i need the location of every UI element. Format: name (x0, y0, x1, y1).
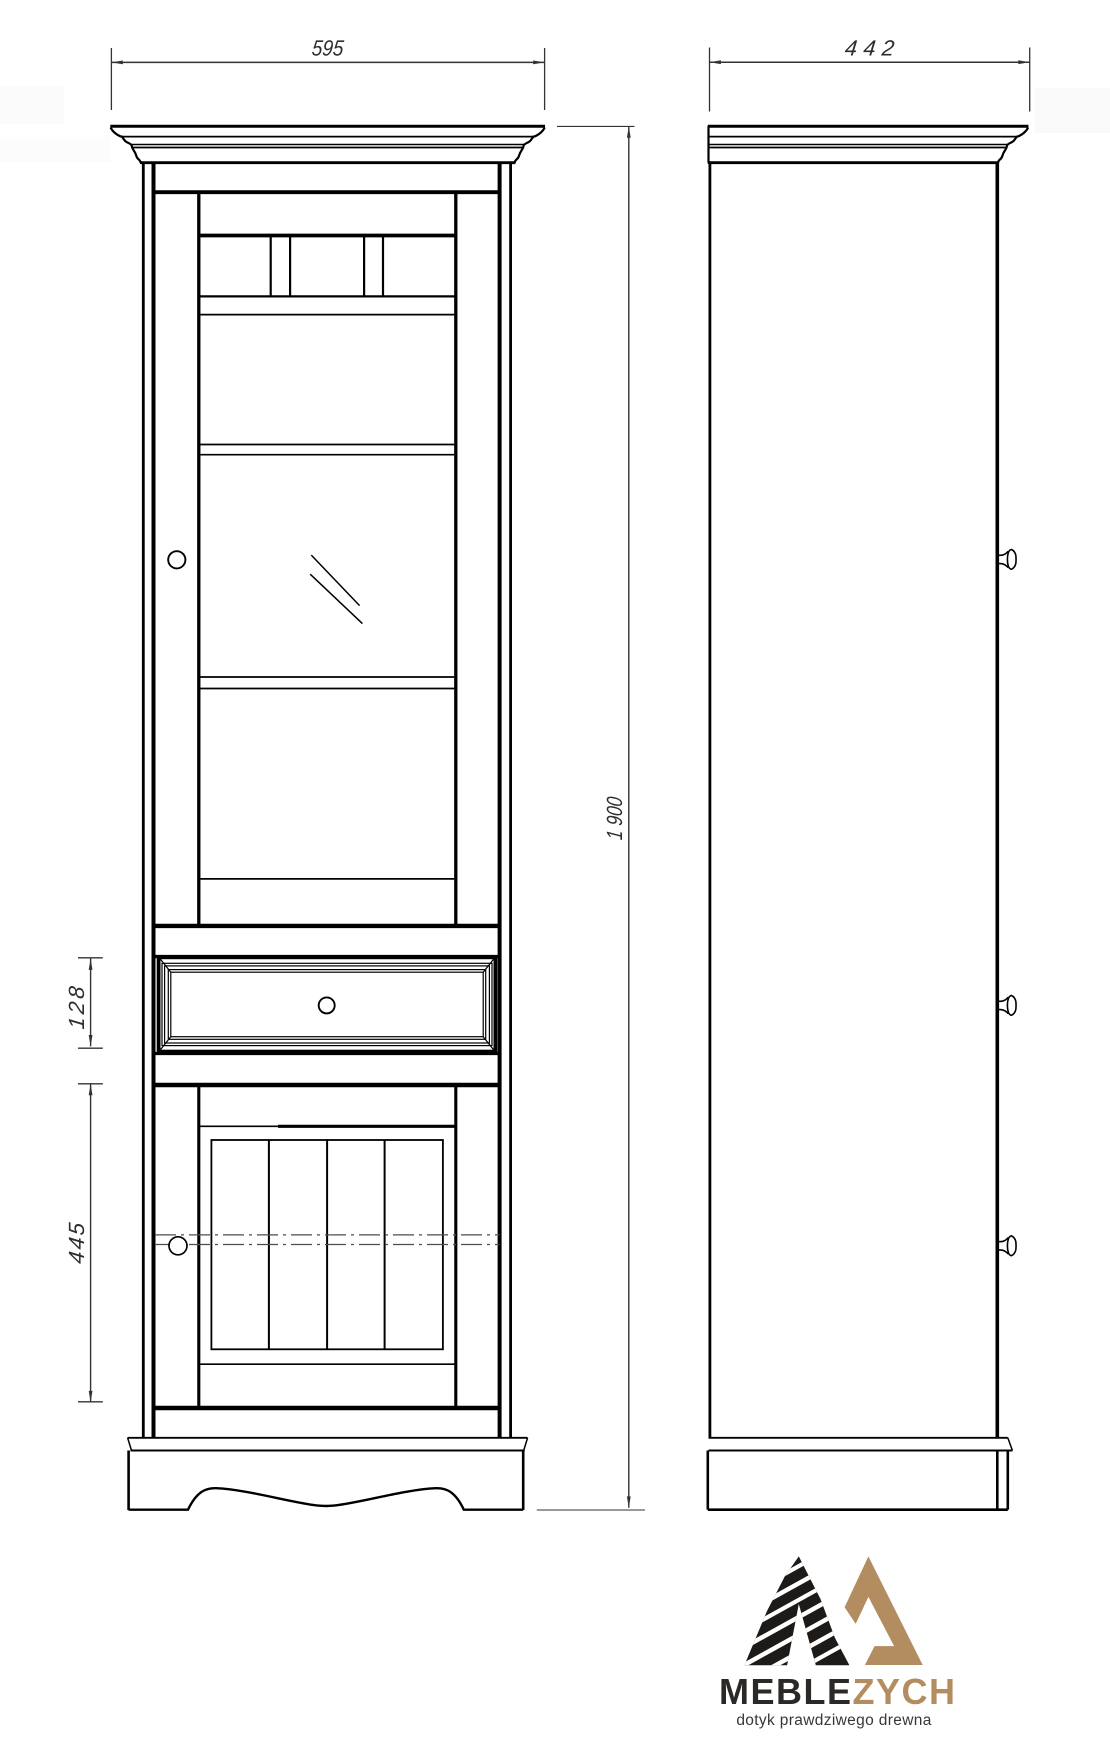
svg-text:128: 128 (64, 982, 89, 1030)
svg-text:dotyk prawdziwego drewna: dotyk prawdziwego drewna (736, 1712, 931, 1729)
svg-text:445: 445 (64, 1220, 89, 1265)
svg-text:595: 595 (311, 36, 346, 61)
svg-text:1 900: 1 900 (603, 796, 627, 841)
svg-text:442: 442 (844, 36, 902, 61)
svg-text:MEBLEZYCH: MEBLEZYCH (719, 1671, 957, 1712)
